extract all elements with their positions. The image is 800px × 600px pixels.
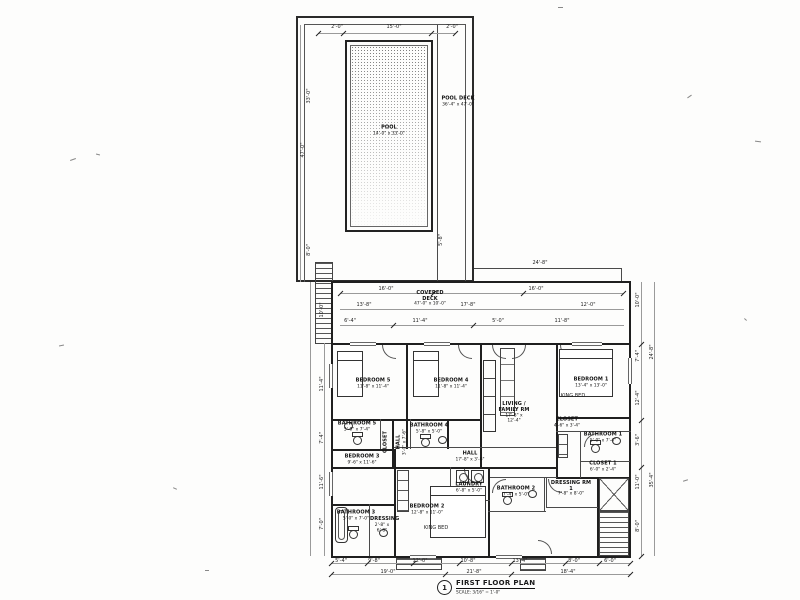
room-dims: 5'-0" x 7'-4" — [586, 438, 620, 443]
drawing-scale: SCALE: 3/16" = 1'-0" — [456, 590, 500, 595]
dimension-label: 33'-0" — [306, 88, 312, 103]
wall — [394, 449, 396, 556]
dimension-label: 11'-8" — [554, 318, 569, 324]
room-label-dressing-rm-1: DRESSING RM 1 7'-8" x 8'-0" — [549, 481, 593, 498]
dimension-label: 24'-8" — [532, 260, 547, 266]
scan-speck — [755, 141, 761, 143]
room-label-pool-deck: POOL DECK 36'-4" x 47'-0" — [438, 97, 478, 108]
room-name: LIVING / FAMILY RM — [498, 402, 530, 413]
room-name: DRESSING RM 1 — [549, 481, 593, 492]
dimension-label: 47'-0" — [300, 142, 306, 157]
room-label-laundry: LAUNDRY 6'-8" x 5'-0" — [454, 483, 484, 494]
stairs-lower-flight — [599, 511, 629, 556]
dimension-label: 15'-0" — [386, 24, 401, 30]
furniture-label: KING BED — [561, 393, 585, 399]
floor-plan-sheet: POOL 14'-0" x 33'-0" POOL DECK 36'-4" x … — [0, 0, 800, 600]
toilet — [348, 526, 358, 538]
dim-line — [340, 325, 624, 326]
room-dims: 5'-0" x 7'-0" — [339, 516, 373, 521]
toilet — [420, 434, 430, 446]
room-label-pool: POOL 14'-0" x 33'-0" — [371, 126, 407, 137]
stairs-upper-flight — [599, 478, 629, 511]
room-name: COVERED DECK — [408, 291, 452, 302]
dimension-label: 16'-0" — [528, 286, 543, 292]
dim-line — [318, 33, 456, 34]
room-label-hall-small: HALL 3'-0" x 7'-6" — [397, 427, 408, 457]
room-dims: 5'-8" x 5'-0" — [412, 429, 446, 434]
door-arc — [382, 345, 396, 359]
toilet — [352, 432, 362, 444]
dim-line — [324, 343, 325, 556]
dimension-label: 16'-0" — [378, 286, 393, 292]
room-label-bedroom-5: BEDROOM 5 11'-8" x 11'-4" — [355, 379, 391, 390]
room-label-bedroom-4: BEDROOM 4 11'-8" x 11'-4" — [433, 379, 469, 390]
line — [580, 431, 581, 478]
dimension-label: 11'-4" — [412, 318, 427, 324]
line — [474, 268, 622, 269]
room-dims: 11'-8" x 11'-4" — [435, 384, 467, 389]
room-label-closet: CLOSET 4'-6" x 3'-4" — [552, 418, 582, 429]
room-dims: 14'-0" x 33'-0" — [373, 131, 405, 136]
room-label-closet-1: CLOSET 1 6'-0" x 2'-4" — [588, 462, 618, 473]
dresser — [397, 470, 409, 512]
dresser — [558, 434, 568, 458]
wall — [480, 343, 482, 469]
room-dims: 9'-6" x 11'-6" — [347, 460, 378, 465]
room-label-covered-deck: COVERED DECK 47'-0" x 10'-0" — [408, 291, 452, 308]
room-label-bedroom-3: BEDROOM 3 9'-6" x 11'-6" — [345, 455, 380, 466]
line — [380, 419, 381, 449]
bed — [337, 351, 363, 397]
window — [350, 342, 376, 346]
room-dims: 47'-0" x 10'-0" — [411, 302, 450, 307]
dim-line — [654, 282, 655, 556]
room-dims: 12'-8" x 11'-0" — [411, 510, 443, 515]
scan-speck — [70, 158, 76, 161]
room-label-bedroom-1: BEDROOM 1 13'-4" x 13'-0" — [573, 378, 609, 389]
room-name: CLOSET — [383, 431, 389, 453]
bed — [413, 351, 439, 397]
dimension-label: 8'-0" — [306, 244, 312, 256]
scan-speck — [96, 153, 100, 155]
door-arc — [538, 540, 552, 554]
furniture-label: KING BED — [424, 525, 448, 531]
scan-speck — [744, 318, 747, 321]
line — [621, 268, 622, 282]
room-dims: 13'-4" x 13'-0" — [575, 383, 607, 388]
room-name: DRESSING — [370, 517, 394, 523]
window — [329, 364, 333, 388]
wall — [331, 281, 631, 283]
room-label-bathroom-4: BATHROOM 4 5'-8" x 5'-0" — [410, 424, 448, 435]
room-label-bathroom-1: BATHROOM 1 5'-0" x 7'-4" — [584, 433, 622, 444]
dim-line — [331, 563, 631, 564]
dimension-label: 12'-0" — [580, 302, 595, 308]
scan-speck — [173, 487, 177, 490]
dimension-label: 17'-8" — [460, 302, 475, 308]
room-dims: 6'-8" x 5'-0" — [456, 488, 482, 493]
dimension-label: 5'-8" — [438, 234, 444, 246]
room-dims: 17'-8" x 3'-6" — [455, 457, 484, 462]
window — [628, 358, 632, 384]
window — [572, 342, 602, 346]
wall — [331, 467, 558, 469]
dim-tick — [621, 291, 627, 297]
sink — [438, 436, 447, 444]
room-dims: 3'-0" x 7'-6" — [402, 429, 407, 455]
dim-line — [340, 309, 624, 310]
dim-tick — [639, 554, 645, 560]
line — [394, 447, 556, 448]
dimension-label: 10'-0" — [319, 302, 325, 317]
drawing-title: FIRST FLOOR PLAN — [456, 579, 535, 589]
wall — [331, 504, 394, 506]
room-dims: 11'-8" x 11'-4" — [357, 384, 389, 389]
room-dims: 17'-8" x 12'-4" — [500, 414, 528, 424]
dimension-label: 2'-0" — [331, 24, 343, 30]
room-label-bathroom-5: BATHROOM 5 5'-0" x 7'-4" — [338, 422, 376, 433]
room-label-hall: HALL 17'-8" x 3'-6" — [453, 452, 486, 463]
line — [488, 511, 546, 512]
room-dims: 5'-0" x 7'-4" — [340, 427, 374, 432]
room-label-bedroom-2: BEDROOM 2 12'-8" x 11'-0" — [409, 505, 445, 516]
dim-tick — [628, 561, 634, 567]
scan-speck — [59, 344, 64, 346]
room-dims: 2'-8" x 6'-8" — [371, 523, 392, 533]
dim-line — [310, 282, 311, 556]
wall — [629, 281, 631, 558]
dim-line — [331, 574, 631, 575]
scan-speck — [687, 95, 692, 99]
dimension-label: 2'-0" — [446, 24, 458, 30]
room-dims: 7'-4" x 5'-0" — [499, 492, 533, 497]
room-dims: 6'-0" x 2'-4" — [590, 467, 616, 472]
window — [424, 342, 450, 346]
line — [544, 477, 545, 512]
couch — [483, 360, 496, 432]
scan-speck — [205, 570, 209, 571]
room-label-dressing: DRESSING 2'-8" x 6'-8" — [370, 517, 394, 534]
line — [546, 507, 598, 508]
room-dims: 7'-8" x 8'-0" — [552, 492, 591, 497]
dimension-label: 13'-8" — [356, 302, 371, 308]
door-arc — [458, 345, 472, 359]
room-label-closet-hall: CLOSET — [383, 431, 389, 453]
drawing-number: 1 — [442, 584, 447, 592]
dim-line — [340, 293, 624, 294]
king-bed — [559, 349, 613, 397]
line — [546, 477, 547, 508]
room-label-bathroom-2: BATHROOM 2 7'-4" x 5'-0" — [497, 487, 535, 498]
scan-speck — [683, 479, 688, 481]
scan-speck — [558, 7, 563, 8]
wall — [556, 343, 558, 479]
room-dims: 4'-6" x 3'-4" — [554, 423, 580, 428]
room-label-living-family: LIVING / FAMILY RM 17'-8" x 12'-4" — [498, 402, 530, 424]
drawing-number-bubble: 1 — [437, 580, 452, 595]
dim-tick — [628, 572, 634, 578]
dimension-label: 5'-0" — [492, 318, 504, 324]
room-dims: 36'-4" x 47'-0" — [440, 102, 475, 107]
dimension-label: 6'-4" — [344, 318, 356, 324]
window — [329, 472, 333, 496]
